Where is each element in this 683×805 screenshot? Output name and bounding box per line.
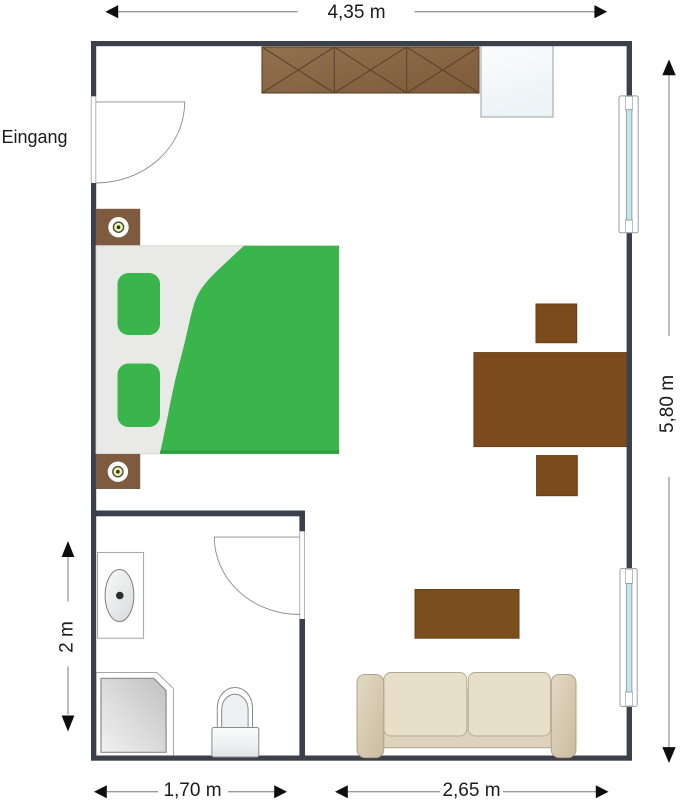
svg-text:2 m: 2 m — [57, 621, 78, 653]
svg-text:1,70 m: 1,70 m — [163, 780, 221, 800]
svg-text:2,65 m: 2,65 m — [442, 780, 500, 800]
svg-text:5,80 m: 5,80 m — [657, 375, 678, 433]
svg-text:4,35 m: 4,35 m — [327, 2, 385, 23]
svg-text:Eingang: Eingang — [2, 127, 68, 147]
